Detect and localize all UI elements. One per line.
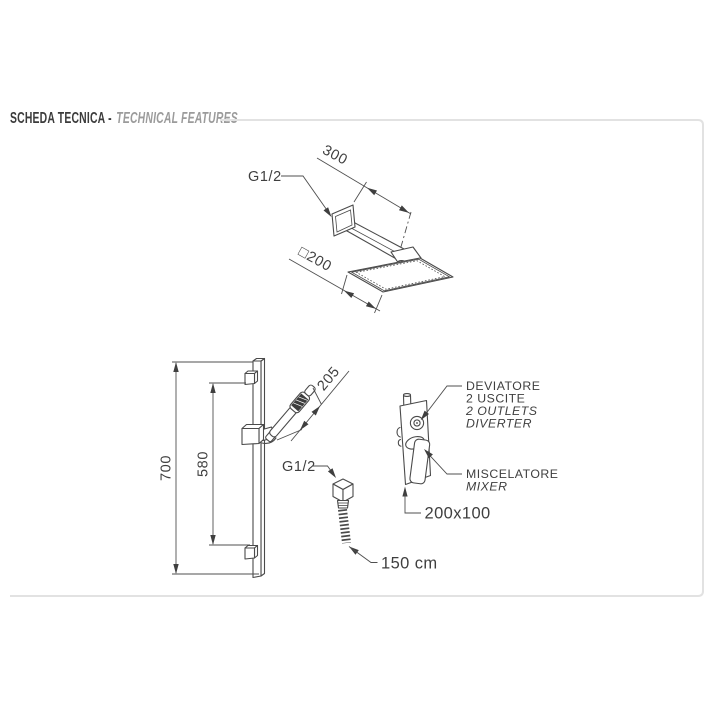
side-port (398, 440, 401, 447)
diverter-label-4: DIVERTER (466, 417, 532, 431)
rail-height-text: 700 (159, 455, 175, 481)
extension-line (354, 182, 367, 202)
top-connection-leader (281, 176, 329, 213)
inlet-pipe-top (404, 394, 411, 397)
diverter-leader (423, 386, 462, 418)
plate-size-leader (405, 495, 421, 514)
bracket-front (245, 548, 255, 559)
plate-size-text: 200x100 (425, 505, 491, 523)
flex-hose-coil (343, 510, 347, 544)
technical-drawing: G1/2 300 □200 (0, 0, 720, 720)
bracket-span-text: 580 (196, 451, 212, 477)
dimension-arrow (173, 362, 178, 372)
handshower-length-text: 205 (314, 364, 343, 394)
dimension-arrow (173, 564, 178, 574)
dimension-arrow (344, 291, 354, 298)
slide-rail-drawing: 700 580 205 G1/2 (159, 359, 438, 578)
wall-elbow (333, 479, 353, 508)
side-port (397, 428, 400, 438)
slider-side (259, 425, 264, 444)
outlet-connection-label: G1/2 (282, 459, 316, 475)
mixer-drawing: DEVIATORE 2 USCITE 2 OUTLETS DIVERTER MI… (397, 379, 558, 523)
bottom-bracket (245, 546, 258, 560)
extension-line (342, 275, 348, 294)
top-connection-label: G1/2 (248, 169, 282, 185)
dimension-arrow (210, 383, 215, 393)
diverter-knob-dot (416, 422, 418, 424)
dimension-bracket-span: 580 (196, 383, 251, 545)
elbow-nut (338, 501, 349, 509)
mixer-label-2: MIXER (466, 480, 507, 494)
arm-length-text: 300 (320, 142, 350, 168)
dimension-arrow (210, 535, 215, 545)
dimension-arrow (399, 205, 409, 213)
dimension-arrow (367, 188, 377, 196)
outlet-arrow (328, 468, 336, 478)
overhead-shower-drawing: G1/2 300 □200 (248, 142, 453, 313)
panel-border (10, 120, 703, 596)
dimension-arrow (300, 421, 309, 431)
slider-front (242, 429, 259, 445)
hose-length-text: 150 cm (381, 555, 438, 573)
top-connection-arrow (324, 207, 332, 217)
head-centerline (400, 212, 412, 252)
dimension-arrow (366, 302, 376, 309)
extension-line (313, 388, 322, 405)
dimension-arm-length: 300 (317, 142, 411, 214)
head-size-text: □200 (296, 244, 335, 275)
technical-sheet: SCHEDA TECNICA -TECHNICAL FEATURES (0, 0, 720, 720)
dimension-line (289, 259, 380, 311)
top-bracket (245, 371, 258, 385)
bracket-front (245, 374, 255, 385)
dimension-handshower-length: 205 (277, 364, 349, 441)
